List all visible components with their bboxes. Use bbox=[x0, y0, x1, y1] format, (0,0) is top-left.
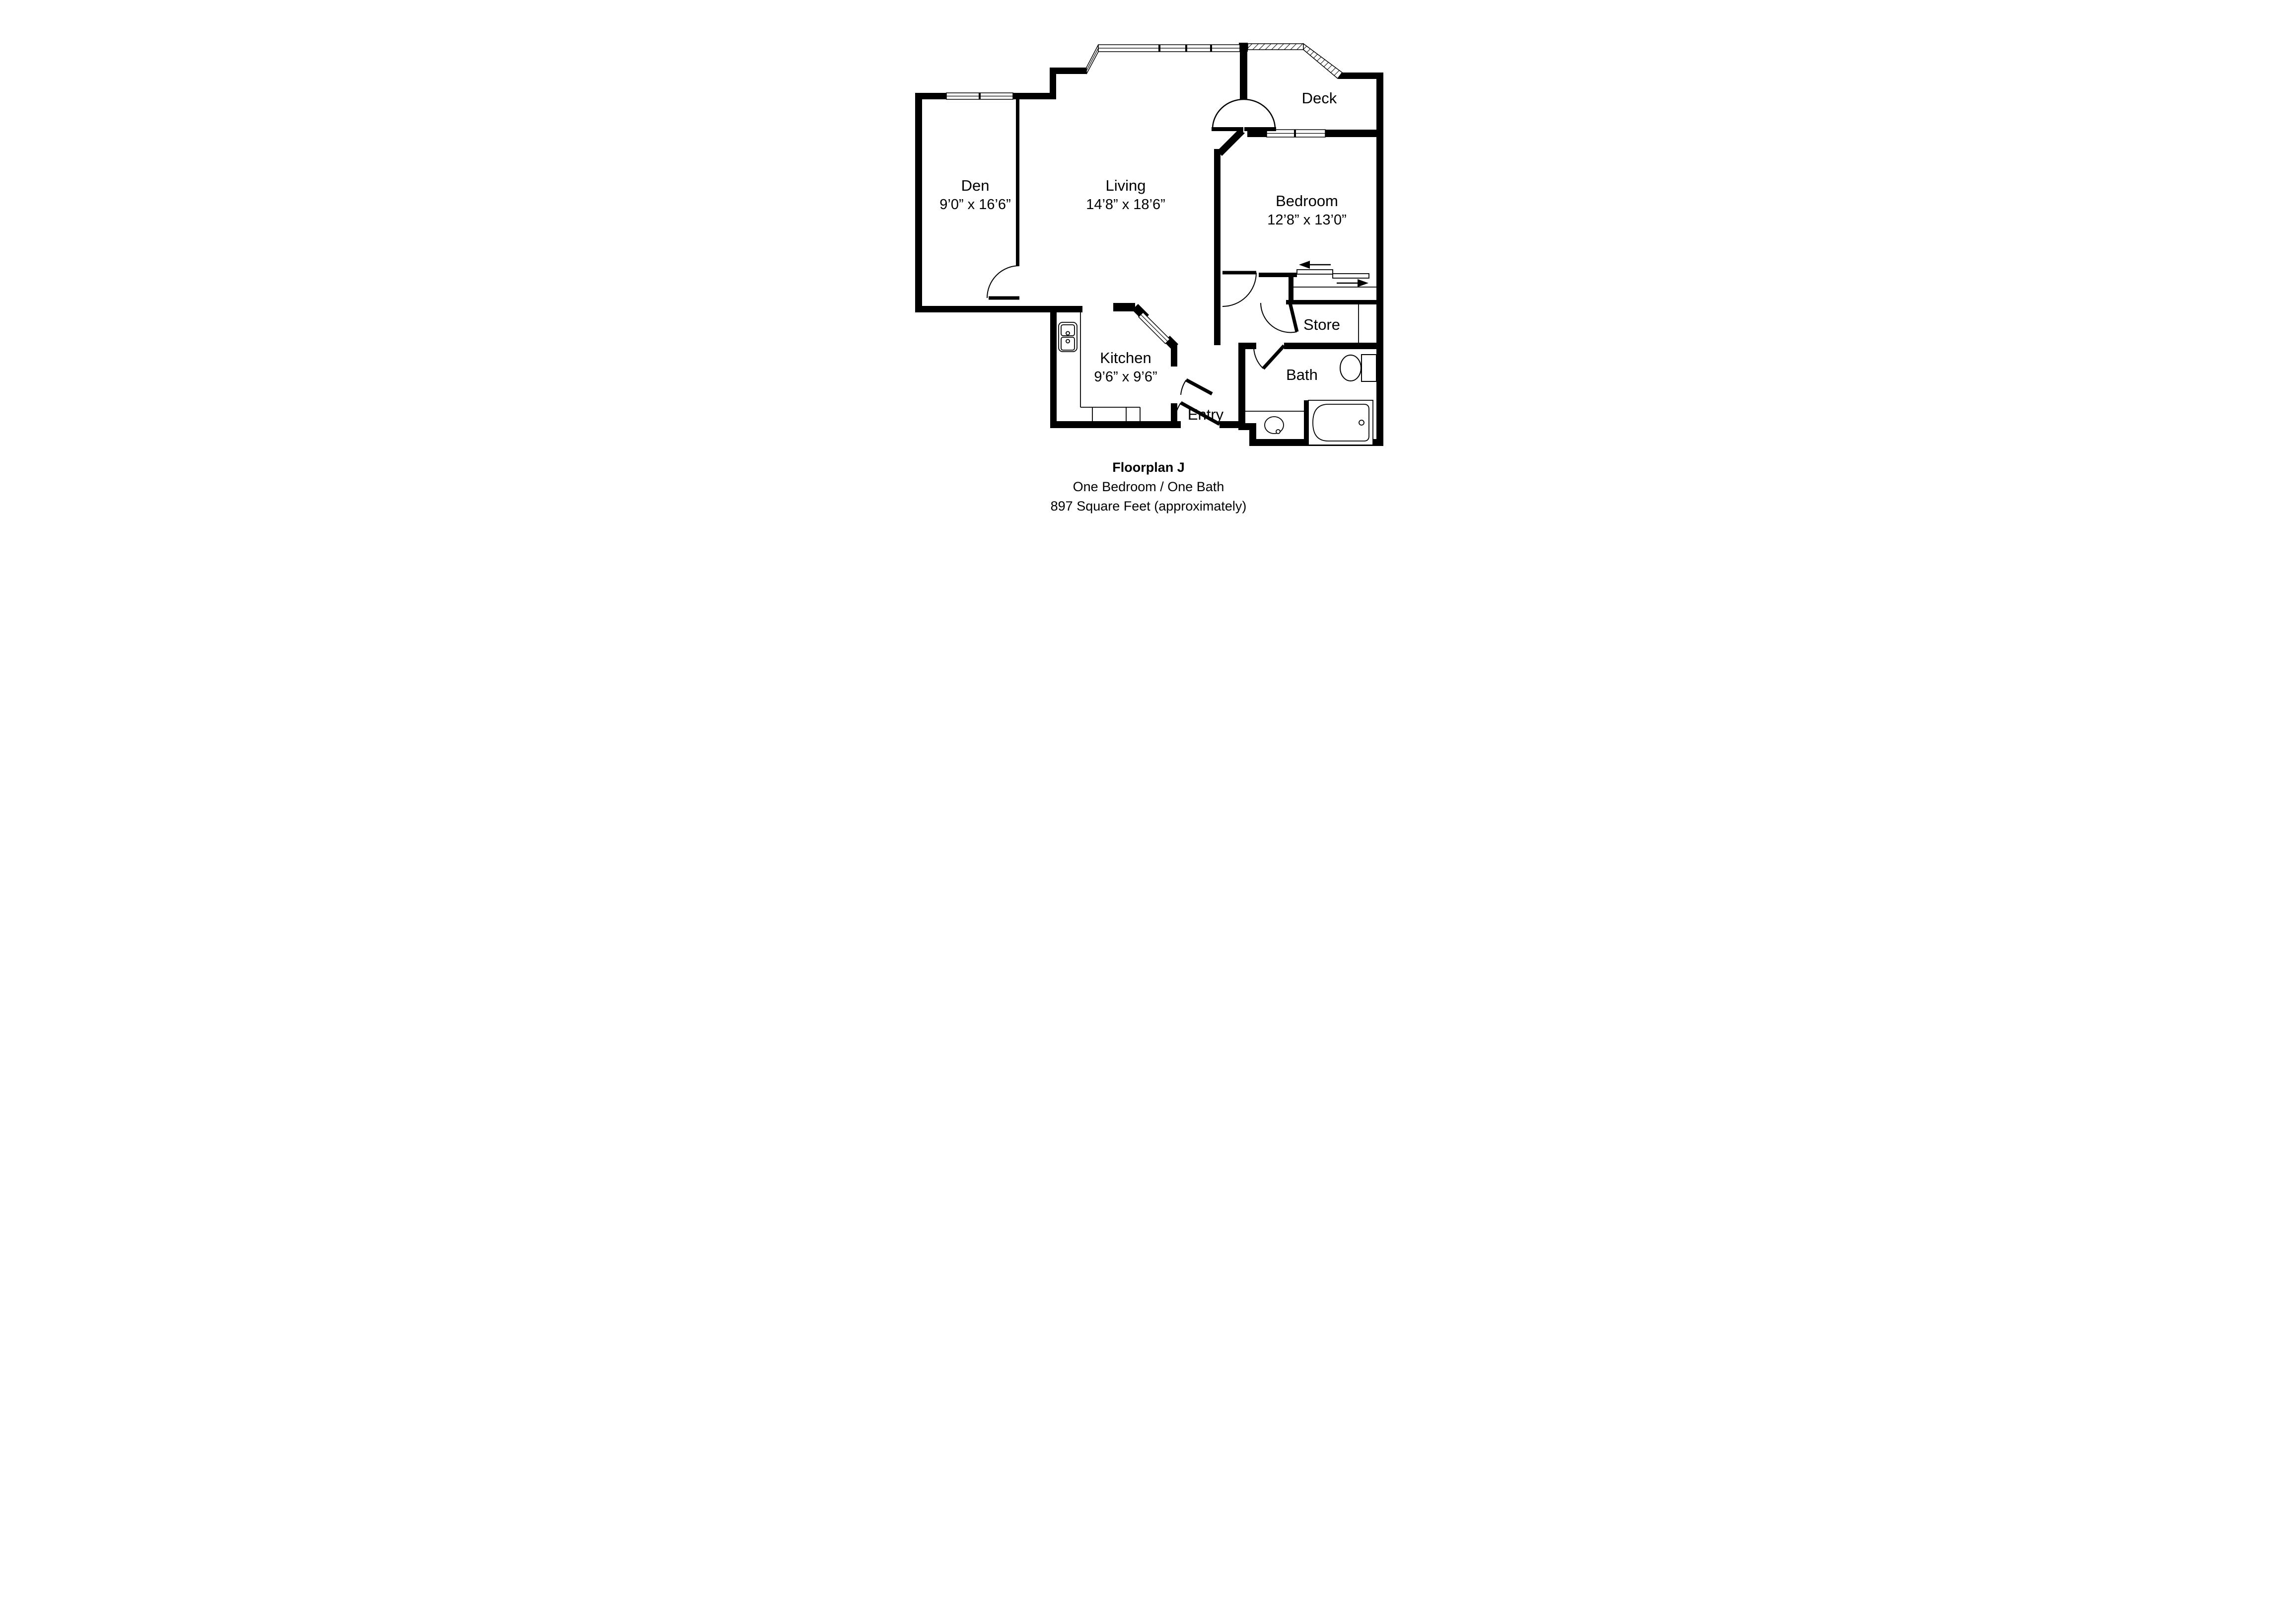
living-deck-wall bbox=[1240, 52, 1247, 100]
entry-label: Entry bbox=[1187, 406, 1223, 423]
bath-label: Bath bbox=[1286, 366, 1318, 383]
balcony-door-icon bbox=[1212, 99, 1276, 133]
kitchen-label: Kitchen bbox=[1100, 349, 1151, 367]
den-dimensions: 9’0” x 16’6” bbox=[939, 197, 1010, 213]
building-right-wall bbox=[1376, 130, 1383, 446]
kitchen-sink-icon bbox=[1059, 322, 1077, 352]
bath-top-wall-left bbox=[1245, 343, 1256, 349]
living-window-band-icon bbox=[1098, 45, 1240, 52]
bedroom-label: Bedroom bbox=[1276, 192, 1338, 210]
bedroom-left-wall bbox=[1214, 149, 1220, 345]
caption-line3: 897 Square Feet (approximately) bbox=[1050, 499, 1246, 514]
bath-top-wall-right bbox=[1284, 343, 1376, 349]
kitchen-angled-wall-top bbox=[1113, 303, 1135, 311]
bedroom-door bbox=[1222, 273, 1256, 306]
bedroom-dimensions: 12’8” x 13’0” bbox=[1267, 212, 1347, 228]
caption-line2: One Bedroom / One Bath bbox=[1073, 479, 1224, 494]
bay-window-icon bbox=[1086, 45, 1098, 74]
den-left-wall bbox=[915, 93, 922, 312]
caption-title: Floorplan J bbox=[1112, 460, 1185, 475]
kitchen-right-wall-top bbox=[1171, 345, 1177, 367]
labels: Den 9’0” x 16’6” Living 14’8” x 18’6” Be… bbox=[939, 89, 1347, 423]
den-bottom-wall bbox=[915, 306, 1082, 312]
kitchen-counter bbox=[1080, 312, 1140, 421]
toilet-icon bbox=[1340, 355, 1376, 381]
den-window-icon bbox=[946, 93, 1013, 99]
deck-right-wall bbox=[1376, 73, 1383, 137]
den-label: Den bbox=[961, 177, 989, 194]
vanity-sink-icon bbox=[1265, 417, 1284, 434]
den-living-partition bbox=[1016, 99, 1019, 266]
floorplan-page: Den 9’0” x 16’6” Living 14’8” x 18’6” Be… bbox=[765, 0, 1532, 541]
bedroom-bottom-wall bbox=[1259, 273, 1297, 277]
floorplan-drawing: Den 9’0” x 16’6” Living 14’8” x 18’6” Be… bbox=[765, 0, 1532, 541]
closet-post bbox=[1289, 277, 1293, 300]
living-dimensions: 14’8” x 18’6” bbox=[1086, 197, 1165, 213]
living-top-wall bbox=[1050, 68, 1086, 74]
kitchen-left-wall bbox=[1050, 306, 1057, 428]
store-door bbox=[1261, 303, 1297, 332]
kitchen-passthrough-window-icon bbox=[1139, 312, 1170, 344]
deck-railing-icon bbox=[1248, 44, 1342, 78]
store-top-wall bbox=[1286, 300, 1376, 304]
closet-slide-arrow-right bbox=[1337, 279, 1368, 287]
bathtub-icon bbox=[1308, 400, 1373, 445]
store-label: Store bbox=[1303, 316, 1340, 333]
living-label: Living bbox=[1105, 177, 1146, 194]
kitchen-dimensions: 9’6” x 9’6” bbox=[1094, 369, 1157, 385]
den-top-wall-right bbox=[1013, 93, 1056, 99]
kitchen-bottom-wall bbox=[1050, 421, 1181, 428]
deck-label: Deck bbox=[1301, 89, 1337, 107]
den-door bbox=[987, 266, 1019, 298]
bath-tub-divider-wall bbox=[1304, 400, 1308, 446]
bedroom-corner-diagonal-wall bbox=[1220, 131, 1242, 153]
entry-right-wall bbox=[1238, 343, 1245, 430]
bath-door bbox=[1254, 346, 1284, 369]
hall-door bbox=[1181, 380, 1212, 395]
caption: Floorplan J One Bedroom / One Bath 897 S… bbox=[1050, 460, 1246, 514]
den-top-wall-left bbox=[915, 93, 946, 99]
closet-slide-arrow-left bbox=[1299, 261, 1331, 269]
